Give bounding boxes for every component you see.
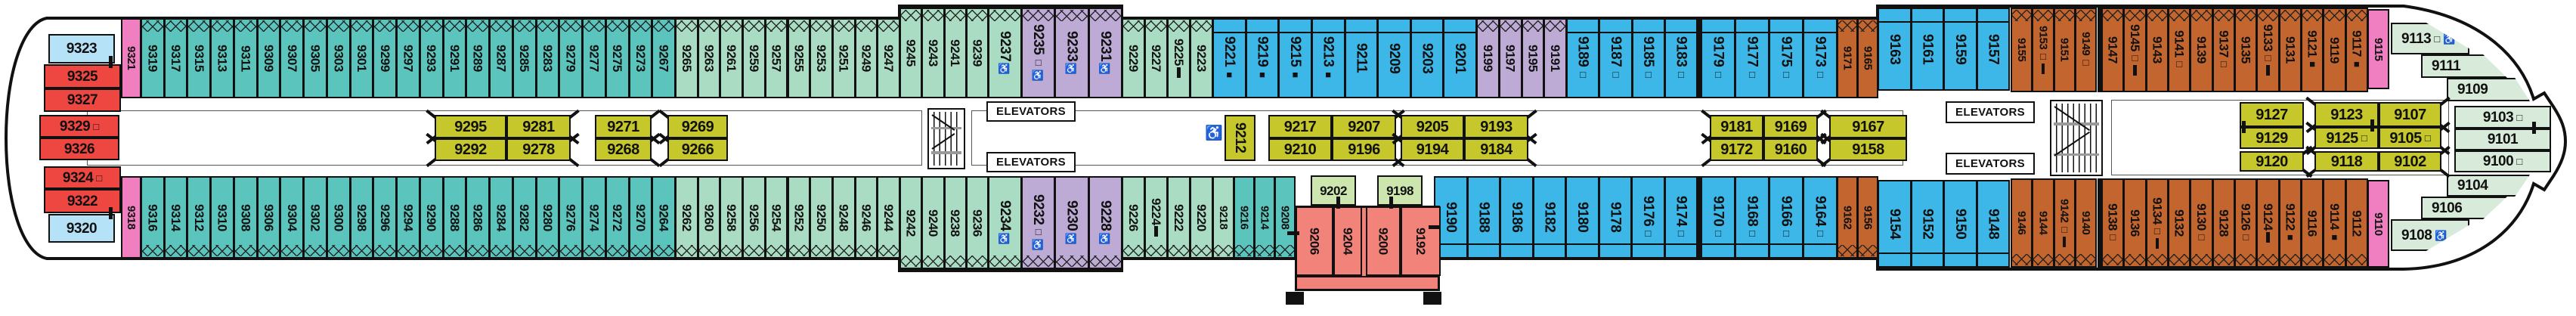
cabin-number: 9252: [792, 204, 805, 231]
cabin-9234[interactable]: 9234♿: [988, 176, 1022, 269]
cabin-number: 9287: [494, 45, 507, 72]
balcony-hatch: [421, 20, 442, 32]
cabin-9100[interactable]: 9100□: [2454, 150, 2551, 172]
cabin-9154[interactable]: 9154: [1878, 180, 1912, 268]
cabin-9105[interactable]: 9105□: [2379, 127, 2441, 149]
connecting-door-marker: [109, 207, 113, 219]
cabin-9180[interactable]: 9180: [1565, 176, 1599, 259]
balcony-hatch: [1523, 20, 1543, 32]
cabin-number: 9202: [1320, 184, 1347, 197]
cabin-9319[interactable]: 9319: [141, 18, 165, 98]
cabin-9225[interactable]: 9225: [1167, 18, 1190, 98]
cabin-number: 9259: [748, 45, 760, 72]
cabin-9284[interactable]: 9284: [489, 176, 513, 259]
cabin-9184[interactable]: 9184: [1464, 138, 1528, 161]
cabin-9205[interactable]: 9205: [1401, 115, 1464, 138]
cabin-9179[interactable]: 9179□: [1701, 18, 1735, 98]
balcony-hatch: [2191, 10, 2211, 21]
balcony-hatch: [2147, 10, 2167, 21]
cabin-9196[interactable]: 9196: [1332, 138, 1396, 161]
cabin-9198[interactable]: 9198: [1377, 175, 1423, 206]
balcony-hatch: [467, 20, 488, 32]
balcony-hatch: [923, 256, 943, 267]
cabin-9310[interactable]: 9310: [210, 176, 234, 259]
cabin-9174[interactable]: 9174□: [1664, 176, 1698, 259]
cabin-9323[interactable]: 9323: [48, 34, 115, 64]
cabin-9213[interactable]: 9213■: [1311, 18, 1345, 98]
cabin-9241[interactable]: 9241: [944, 8, 967, 98]
cabin-9251[interactable]: 9251: [832, 18, 856, 98]
cabin-9280[interactable]: 9280: [536, 176, 560, 259]
cabin-9199[interactable]: 9199: [1476, 18, 1500, 98]
cabin-number: 9255: [792, 45, 805, 72]
balcony-line: [1444, 32, 1475, 33]
cabin-9224[interactable]: 9224: [1144, 176, 1168, 259]
cabin-number: 9150: [1953, 209, 1968, 239]
balcony-line: [1912, 252, 1943, 254]
cabin-9183[interactable]: 9183□: [1664, 18, 1698, 98]
cabin-9128[interactable]: 9128: [2212, 178, 2235, 268]
filled-square-marker: ■: [1257, 69, 1267, 80]
cabin-9265[interactable]: 9265: [675, 18, 698, 98]
cabin-number: 9187□: [1608, 36, 1623, 79]
cabin-9135[interactable]: 9135: [2234, 8, 2257, 92]
cabin-9326[interactable]: 9326: [39, 138, 119, 160]
cabin-9253[interactable]: 9253: [810, 18, 833, 98]
cabin-9117[interactable]: 9117■: [2345, 8, 2368, 92]
cabin-9162[interactable]: 9162: [1837, 176, 1858, 259]
cabin-9221[interactable]: 9221■: [1212, 18, 1246, 98]
cabin-number: 9153□: [2037, 26, 2048, 74]
cabin-9290[interactable]: 9290: [420, 176, 444, 259]
cabin-9153[interactable]: 9153□: [2032, 8, 2054, 92]
cabin-number: 9280: [541, 204, 554, 231]
cabin-number: 9248: [838, 204, 850, 231]
cabin-9286[interactable]: 9286: [466, 176, 490, 259]
cabin-9283[interactable]: 9283: [536, 18, 560, 98]
cabin-9185[interactable]: 9185□: [1632, 18, 1665, 98]
cabin-9102[interactable]: 9102: [2379, 151, 2441, 172]
cabin-9302[interactable]: 9302: [303, 176, 327, 259]
cabin-9243[interactable]: 9243: [921, 8, 944, 98]
cabin-9229[interactable]: 9229: [1122, 18, 1145, 98]
cabin-9244[interactable]: 9244: [877, 176, 900, 259]
cabin-9281[interactable]: 9281: [506, 115, 571, 138]
cabin-9254[interactable]: 9254: [765, 176, 788, 259]
balcony-hatch: [444, 245, 466, 256]
cabin-9246[interactable]: 9246: [855, 176, 878, 259]
cabin-9264[interactable]: 9264: [652, 176, 676, 259]
cabin-9271[interactable]: 9271: [595, 115, 652, 138]
connecting-door-marker: [2370, 119, 2374, 132]
cabin-9222[interactable]: 9222: [1167, 176, 1190, 259]
cabin-9227[interactable]: 9227: [1144, 18, 1168, 98]
cabin-9304[interactable]: 9304: [280, 176, 304, 259]
cabin-9238[interactable]: 9238: [944, 176, 967, 269]
cabin-9134[interactable]: 9134□: [2146, 178, 2169, 268]
cabin-9144[interactable]: 9144: [2032, 178, 2054, 268]
cabin-9212[interactable]: 9212: [1225, 115, 1255, 161]
cabin-number: 9162: [1842, 206, 1853, 229]
cabin-9202[interactable]: 9202: [1311, 175, 1356, 206]
cabin-number: 9256: [748, 204, 760, 231]
cabin-9142[interactable]: 9142□: [2054, 178, 2076, 268]
cabin-9272[interactable]: 9272: [605, 176, 630, 259]
cabin-9279[interactable]: 9279: [559, 18, 583, 98]
cabin-9296[interactable]: 9296: [373, 176, 397, 259]
cabin-9189[interactable]: 9189□: [1566, 18, 1599, 98]
balcony-hatch: [2012, 254, 2031, 265]
cabin-9123[interactable]: 9123: [2314, 102, 2379, 127]
balcony-hatch: [2347, 10, 2367, 21]
cabin-number: 9190: [1444, 202, 1458, 232]
balcony-hatch: [281, 245, 302, 256]
cabin-9158[interactable]: 9158: [1829, 138, 1907, 161]
cabin-9297[interactable]: 9297: [396, 18, 420, 98]
cabin-9136[interactable]: 9136: [2123, 178, 2146, 268]
balcony-hatch: [235, 20, 256, 32]
cabin-9258[interactable]: 9258: [720, 176, 743, 259]
cabin-9276[interactable]: 9276: [559, 176, 583, 259]
cabin-9329[interactable]: 9329□: [39, 115, 119, 138]
cabin-9133[interactable]: 9133□: [2256, 8, 2279, 92]
cabin-9151[interactable]: 9151: [2054, 8, 2076, 92]
cabin-9252[interactable]: 9252: [788, 176, 811, 259]
cabin-number: 9279: [565, 45, 577, 72]
cabin-9131[interactable]: 9131: [2279, 8, 2302, 92]
cabin-9149[interactable]: 9149□: [2075, 8, 2097, 92]
cabin-9167[interactable]: 9167: [1829, 115, 1907, 138]
cabin-9103[interactable]: 9103□: [2454, 106, 2551, 129]
cabin-9130[interactable]: 9130□: [2190, 178, 2212, 268]
cabin-9169[interactable]: 9169: [1763, 115, 1818, 138]
balcony-line: [1346, 32, 1377, 33]
cabin-9293[interactable]: 9293: [420, 18, 444, 98]
cabin-9172[interactable]: 9172: [1710, 138, 1763, 161]
cabin-9269[interactable]: 9269: [667, 115, 728, 138]
cabin-9300[interactable]: 9300: [327, 176, 351, 259]
cabin-9118[interactable]: 9118: [2314, 151, 2379, 172]
cabin-9216[interactable]: 9216: [1234, 176, 1255, 259]
open-square-marker: □: [2060, 224, 2070, 235]
cabin-9148[interactable]: 9148: [1977, 180, 2011, 268]
cabin-9155[interactable]: 9155: [2011, 8, 2033, 92]
cabin-9242[interactable]: 9242: [899, 176, 922, 269]
cabin-9294[interactable]: 9294: [396, 176, 420, 259]
cabin-9203[interactable]: 9203: [1410, 18, 1444, 98]
balcony-line: [1280, 32, 1311, 33]
balcony-hatch: [2033, 10, 2052, 21]
cabin-9192[interactable]: 9192: [1401, 206, 1441, 276]
cabin-number: 9159: [1953, 34, 1968, 64]
cabin-9278[interactable]: 9278: [506, 138, 571, 161]
cabin-9239[interactable]: 9239: [966, 8, 989, 98]
cabin-9289[interactable]: 9289: [466, 18, 490, 98]
cabin-number: 9213■: [1321, 36, 1336, 79]
cabin-number: 9266: [682, 142, 714, 157]
cabin-9236[interactable]: 9236: [966, 176, 989, 269]
cabin-9161[interactable]: 9161: [1911, 8, 1945, 91]
cabin-number: 9319: [146, 45, 159, 72]
balcony-hatch: [259, 20, 280, 32]
cabin-9186[interactable]: 9186: [1500, 176, 1534, 259]
cabin-9321[interactable]: 9321: [121, 18, 141, 98]
cabin-9259[interactable]: 9259: [742, 18, 766, 98]
cabin-9163[interactable]: 9163: [1878, 8, 1912, 91]
cabin-9231[interactable]: 9231♿: [1088, 8, 1122, 98]
cabin-9267[interactable]: 9267: [652, 18, 676, 98]
cabin-number: 9307: [286, 45, 299, 72]
cabin-9257[interactable]: 9257: [765, 18, 788, 98]
cabin-9306[interactable]: 9306: [257, 176, 281, 259]
cabin-9274[interactable]: 9274: [582, 176, 606, 259]
cabin-9152[interactable]: 9152: [1911, 180, 1945, 268]
balcony-hatch: [968, 256, 987, 267]
cabin-9247[interactable]: 9247: [877, 18, 900, 98]
cabin-9299[interactable]: 9299: [373, 18, 397, 98]
cabin-9218[interactable]: 9218: [1212, 176, 1234, 259]
cabin-9226[interactable]: 9226: [1122, 176, 1145, 259]
cabin-9139[interactable]: 9139: [2190, 8, 2212, 92]
cabin-9219[interactable]: 9219■: [1246, 18, 1280, 98]
balcony-hatch: [789, 245, 810, 256]
balcony-hatch: [328, 20, 349, 32]
cabin-9215[interactable]: 9215■: [1278, 18, 1312, 98]
balcony-line: [1879, 21, 1910, 23]
cabin-9200[interactable]: 9200: [1366, 206, 1401, 276]
cabin-9266[interactable]: 9266: [667, 138, 728, 161]
cabin-9314[interactable]: 9314: [164, 176, 188, 259]
cabin-9137[interactable]: 9137□: [2212, 8, 2235, 92]
cabin-9250[interactable]: 9250: [810, 176, 833, 259]
cabin-9206[interactable]: 9206: [1296, 206, 1333, 276]
cabin-number: 9106: [2432, 201, 2462, 215]
cabin-9177[interactable]: 9177□: [1735, 18, 1769, 98]
cabin-9171[interactable]: 9171: [1837, 18, 1858, 98]
cabin-number: 9247: [882, 45, 895, 72]
cabin-9217[interactable]: 9217: [1268, 115, 1332, 138]
cabin-9197[interactable]: 9197: [1499, 18, 1522, 98]
cabin-9112[interactable]: 9112: [2345, 178, 2368, 268]
cabin-number: 9172: [1720, 142, 1753, 157]
cabin-9273[interactable]: 9273: [629, 18, 653, 98]
cabin-9195[interactable]: 9195: [1522, 18, 1545, 98]
cabin-9121[interactable]: 9121■: [2301, 8, 2324, 92]
cabin-9156[interactable]: 9156: [1857, 176, 1878, 259]
cabin-9261[interactable]: 9261: [720, 18, 743, 98]
cabin-9127[interactable]: 9127: [2240, 102, 2304, 127]
cabin-9277[interactable]: 9277: [582, 18, 606, 98]
cabin-9305[interactable]: 9305: [303, 18, 327, 98]
cabin-9157[interactable]: 9157: [1977, 8, 2011, 91]
cabin-number: 9154: [1887, 209, 1902, 239]
cabin-9201[interactable]: 9201: [1443, 18, 1477, 98]
cabin-9159[interactable]: 9159: [1943, 8, 1977, 91]
cabin-9313[interactable]: 9313: [210, 18, 234, 98]
cabin-9173[interactable]: 9173□: [1803, 18, 1838, 98]
cabin-9207[interactable]: 9207: [1332, 115, 1396, 138]
cabin-9285[interactable]: 9285: [512, 18, 537, 98]
cabin-9114[interactable]: 9114■: [2323, 178, 2345, 268]
cabin-9194[interactable]: 9194: [1401, 138, 1464, 161]
cabin-9315[interactable]: 9315: [187, 18, 211, 98]
cabin-9245[interactable]: 9245: [899, 8, 922, 98]
cabin-9116[interactable]: 9116: [2301, 178, 2324, 268]
cabin-9312[interactable]: 9312: [187, 176, 211, 259]
cabin-9268[interactable]: 9268: [595, 138, 652, 161]
cabin-9240[interactable]: 9240: [921, 176, 944, 269]
cabin-number: 9130□: [2195, 203, 2208, 243]
filled-square-marker: ■: [2308, 58, 2317, 70]
cabin-9145[interactable]: 9145□: [2123, 8, 2146, 92]
cabin-9209[interactable]: 9209: [1377, 18, 1411, 98]
cabin-9191[interactable]: 9191: [1543, 18, 1567, 98]
cabin-number: 9251: [838, 45, 850, 72]
cabin-9282[interactable]: 9282: [512, 176, 537, 259]
cabin-9168[interactable]: 9168□: [1735, 176, 1769, 259]
cabin-number: 9237♿: [998, 31, 1012, 75]
hull-foot: [1286, 292, 1304, 305]
cabin-9311[interactable]: 9311: [234, 18, 258, 98]
cabin-9138[interactable]: 9138□: [2101, 178, 2124, 268]
cabin-number: 9203: [1420, 43, 1435, 73]
cabin-9249[interactable]: 9249: [855, 18, 878, 98]
cabin-number: 9312: [193, 204, 206, 231]
cabin-9316[interactable]: 9316: [141, 176, 165, 259]
cabin-9143[interactable]: 9143: [2146, 8, 2169, 92]
cabin-9318[interactable]: 9318: [121, 176, 141, 259]
cabin-9214[interactable]: 9214: [1254, 176, 1275, 259]
cabin-9270[interactable]: 9270: [629, 176, 653, 259]
cabin-9187[interactable]: 9187□: [1599, 18, 1632, 98]
cabin-9122[interactable]: 9122■: [2279, 178, 2302, 268]
stairs: [927, 108, 965, 169]
cabin-9288[interactable]: 9288: [443, 176, 467, 259]
cabin-9298[interactable]: 9298: [350, 176, 374, 259]
cabin-number: 9284: [494, 204, 507, 231]
cabin-9132[interactable]: 9132: [2168, 178, 2191, 268]
cabin-9140[interactable]: 9140: [2075, 178, 2097, 268]
balcony-hatch: [537, 245, 559, 256]
cabin-9287[interactable]: 9287: [489, 18, 513, 98]
cabin-9211[interactable]: 9211: [1345, 18, 1379, 98]
cabin-9220[interactable]: 9220: [1190, 176, 1213, 259]
cabin-9262[interactable]: 9262: [675, 176, 698, 259]
cabin-9125[interactable]: 9125□: [2314, 127, 2379, 149]
cabin-number: 9265: [680, 45, 693, 72]
cabin-9182[interactable]: 9182: [1533, 176, 1567, 259]
cabin-9303[interactable]: 9303: [327, 18, 351, 98]
cabin-number: 9201: [1453, 43, 1467, 73]
cabin-9188[interactable]: 9188: [1467, 176, 1501, 259]
cabin-number: 9244: [882, 204, 895, 231]
cabin-9110[interactable]: 9110: [2367, 180, 2389, 268]
cabin-9210[interactable]: 9210: [1268, 138, 1332, 161]
cabin-9309[interactable]: 9309: [257, 18, 281, 98]
cabin-9320[interactable]: 9320: [48, 214, 115, 243]
wheelchair-icon: ♿: [1067, 63, 1076, 75]
cabin-9232[interactable]: 9232□♿: [1021, 176, 1055, 269]
cabin-9115[interactable]: 9115: [2367, 9, 2389, 89]
cabin-9295[interactable]: 9295: [435, 115, 506, 138]
cabin-9208[interactable]: 9208: [1274, 176, 1296, 259]
cabin-9147[interactable]: 9147: [2101, 8, 2124, 92]
cabin-9263[interactable]: 9263: [698, 18, 721, 98]
cabin-9307[interactable]: 9307: [280, 18, 304, 98]
cabin-9175[interactable]: 9175□: [1769, 18, 1804, 98]
cabin-9120[interactable]: 9120: [2240, 151, 2304, 172]
balcony-hatch: [2324, 254, 2344, 265]
filled-square-marker: ■: [1324, 69, 1333, 80]
cabin-9255[interactable]: 9255: [788, 18, 811, 98]
cabin-9235[interactable]: 9235□♿: [1021, 8, 1055, 98]
cabin-9164[interactable]: 9164□: [1803, 176, 1838, 259]
cabin-9317[interactable]: 9317: [164, 18, 188, 98]
cabin-9107[interactable]: 9107: [2379, 102, 2441, 127]
balcony-hatch: [305, 20, 326, 32]
cabin-9291[interactable]: 9291: [443, 18, 467, 98]
cabin-9126[interactable]: 9126□: [2234, 178, 2257, 268]
cabin-9170[interactable]: 9170□: [1701, 176, 1735, 259]
cabin-9248[interactable]: 9248: [832, 176, 856, 259]
cabin-9292[interactable]: 9292: [435, 138, 506, 161]
cabin-9101[interactable]: 9101: [2454, 129, 2551, 150]
cabin-9327[interactable]: 9327: [44, 88, 121, 112]
cabin-9129[interactable]: 9129: [2240, 127, 2304, 149]
cabin-9181[interactable]: 9181: [1710, 115, 1763, 138]
cabin-number: 9286: [472, 204, 485, 231]
cabin-9141[interactable]: 9141□: [2168, 8, 2191, 92]
cabin-9237[interactable]: 9237♿: [988, 8, 1022, 98]
cabin-number: 9294: [401, 204, 414, 231]
cabin-9146[interactable]: 9146: [2011, 178, 2033, 268]
balcony-hatch: [946, 256, 965, 267]
cabin-9275[interactable]: 9275: [605, 18, 630, 98]
cabin-9230[interactable]: 9230♿: [1054, 176, 1088, 269]
cabin-number: 9185□: [1641, 36, 1655, 79]
cabin-9223[interactable]: 9223: [1190, 18, 1213, 98]
cabin-9160[interactable]: 9160: [1763, 138, 1818, 161]
cabin-number: 9141□: [2173, 30, 2186, 70]
cabin-number: 9193: [1480, 119, 1512, 135]
cabin-9233[interactable]: 9233♿: [1054, 8, 1088, 98]
cabin-number: 9289: [472, 45, 485, 72]
cabin-9256[interactable]: 9256: [742, 176, 766, 259]
cabin-9308[interactable]: 9308: [234, 176, 258, 259]
cabin-9176[interactable]: 9176□: [1631, 176, 1665, 259]
cabin-number: 9301: [355, 45, 368, 72]
cabin-9193[interactable]: 9193: [1464, 115, 1528, 138]
cabin-9150[interactable]: 9150: [1943, 180, 1977, 268]
cabin-9124[interactable]: 9124: [2256, 178, 2279, 268]
balcony-hatch: [2103, 10, 2122, 21]
open-square-marker: □: [1816, 69, 1825, 80]
balcony-hatch: [2147, 254, 2167, 265]
cabin-9301[interactable]: 9301: [350, 18, 374, 98]
cabin-number: 9214: [1259, 206, 1271, 229]
cabin-9166[interactable]: 9166□: [1769, 176, 1804, 259]
cabin-9324[interactable]: 9324□: [44, 166, 121, 189]
cabin-9260[interactable]: 9260: [698, 176, 721, 259]
balcony-hatch: [1838, 245, 1856, 256]
cabin-9178[interactable]: 9178: [1599, 176, 1633, 259]
cabin-number: 9323: [67, 42, 97, 56]
cabin-9204[interactable]: 9204: [1333, 206, 1362, 276]
cabin-9165[interactable]: 9165: [1857, 18, 1878, 98]
cabin-9119[interactable]: 9119: [2323, 8, 2345, 92]
cabin-number: 9277: [587, 45, 600, 72]
cabin-9228[interactable]: 9228♿: [1088, 176, 1122, 269]
